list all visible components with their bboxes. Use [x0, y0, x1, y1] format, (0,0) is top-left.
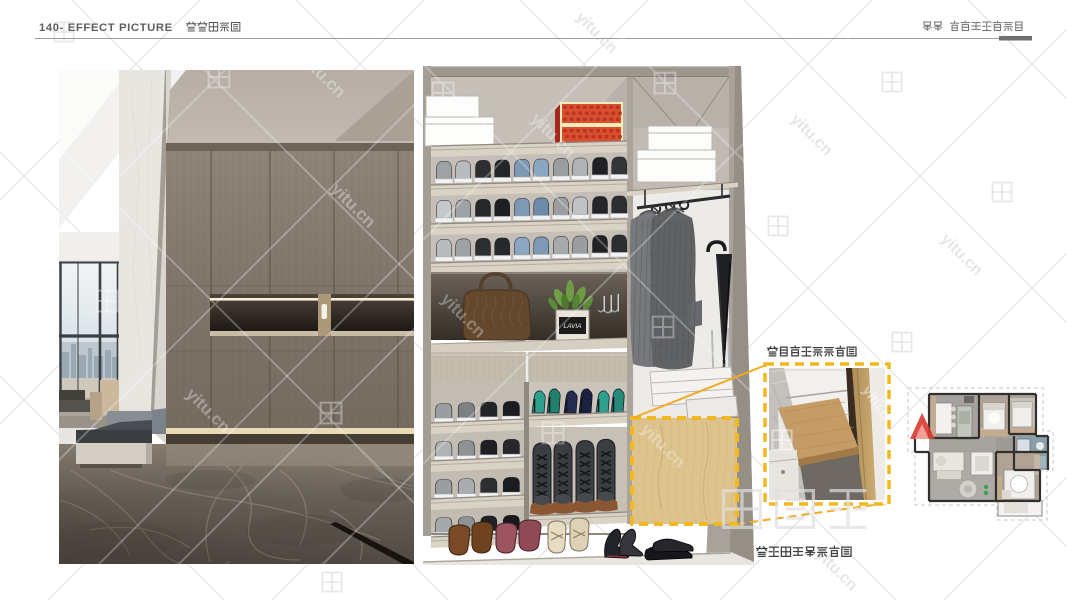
svg-text:yitu.cn: yitu.cn — [787, 111, 835, 159]
svg-text:140- EFFECT PICTURE: 140- EFFECT PICTURE — [39, 22, 173, 34]
svg-text:LAVIA: LAVIA — [563, 323, 581, 330]
svg-text:yitu.cn: yitu.cn — [937, 231, 985, 279]
